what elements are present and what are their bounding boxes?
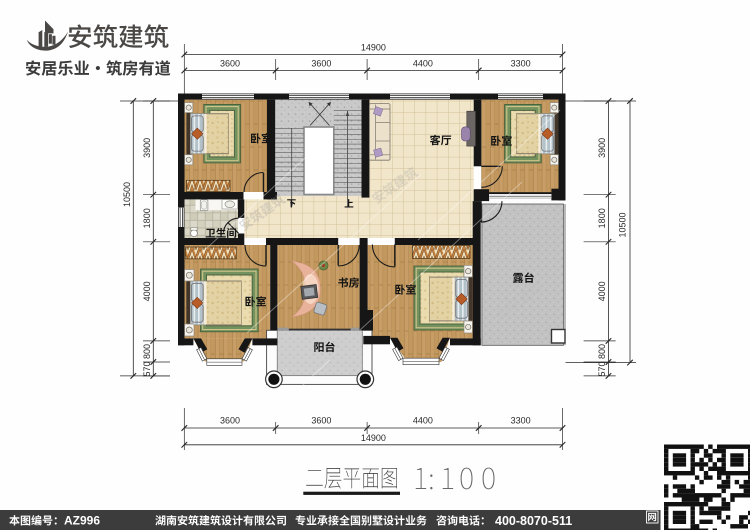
svg-text:4000: 4000: [597, 281, 607, 301]
svg-text:4400: 4400: [413, 59, 433, 69]
svg-text:570: 570: [142, 361, 152, 376]
svg-text:800: 800: [597, 344, 607, 359]
svg-text:1800: 1800: [142, 208, 152, 228]
svg-text:14900: 14900: [361, 43, 386, 53]
svg-text:3600: 3600: [311, 416, 331, 426]
svg-text:570: 570: [597, 361, 607, 376]
svg-text:AZ996: AZ996: [64, 514, 100, 528]
svg-text:1800: 1800: [597, 208, 607, 228]
svg-text:3900: 3900: [142, 138, 152, 158]
svg-text:10500: 10500: [122, 182, 132, 207]
svg-text:4000: 4000: [142, 281, 152, 301]
svg-text:14900: 14900: [361, 433, 386, 443]
svg-text:800: 800: [142, 344, 152, 359]
svg-text:3600: 3600: [220, 416, 240, 426]
svg-text:10500: 10500: [618, 212, 628, 237]
svg-text:400-8070-511: 400-8070-511: [495, 514, 572, 528]
svg-text:3300: 3300: [511, 59, 531, 69]
svg-text:3300: 3300: [511, 416, 531, 426]
svg-text:3900: 3900: [597, 138, 607, 158]
svg-text:3600: 3600: [220, 59, 240, 69]
svg-text:4400: 4400: [413, 416, 433, 426]
svg-text:3600: 3600: [311, 59, 331, 69]
